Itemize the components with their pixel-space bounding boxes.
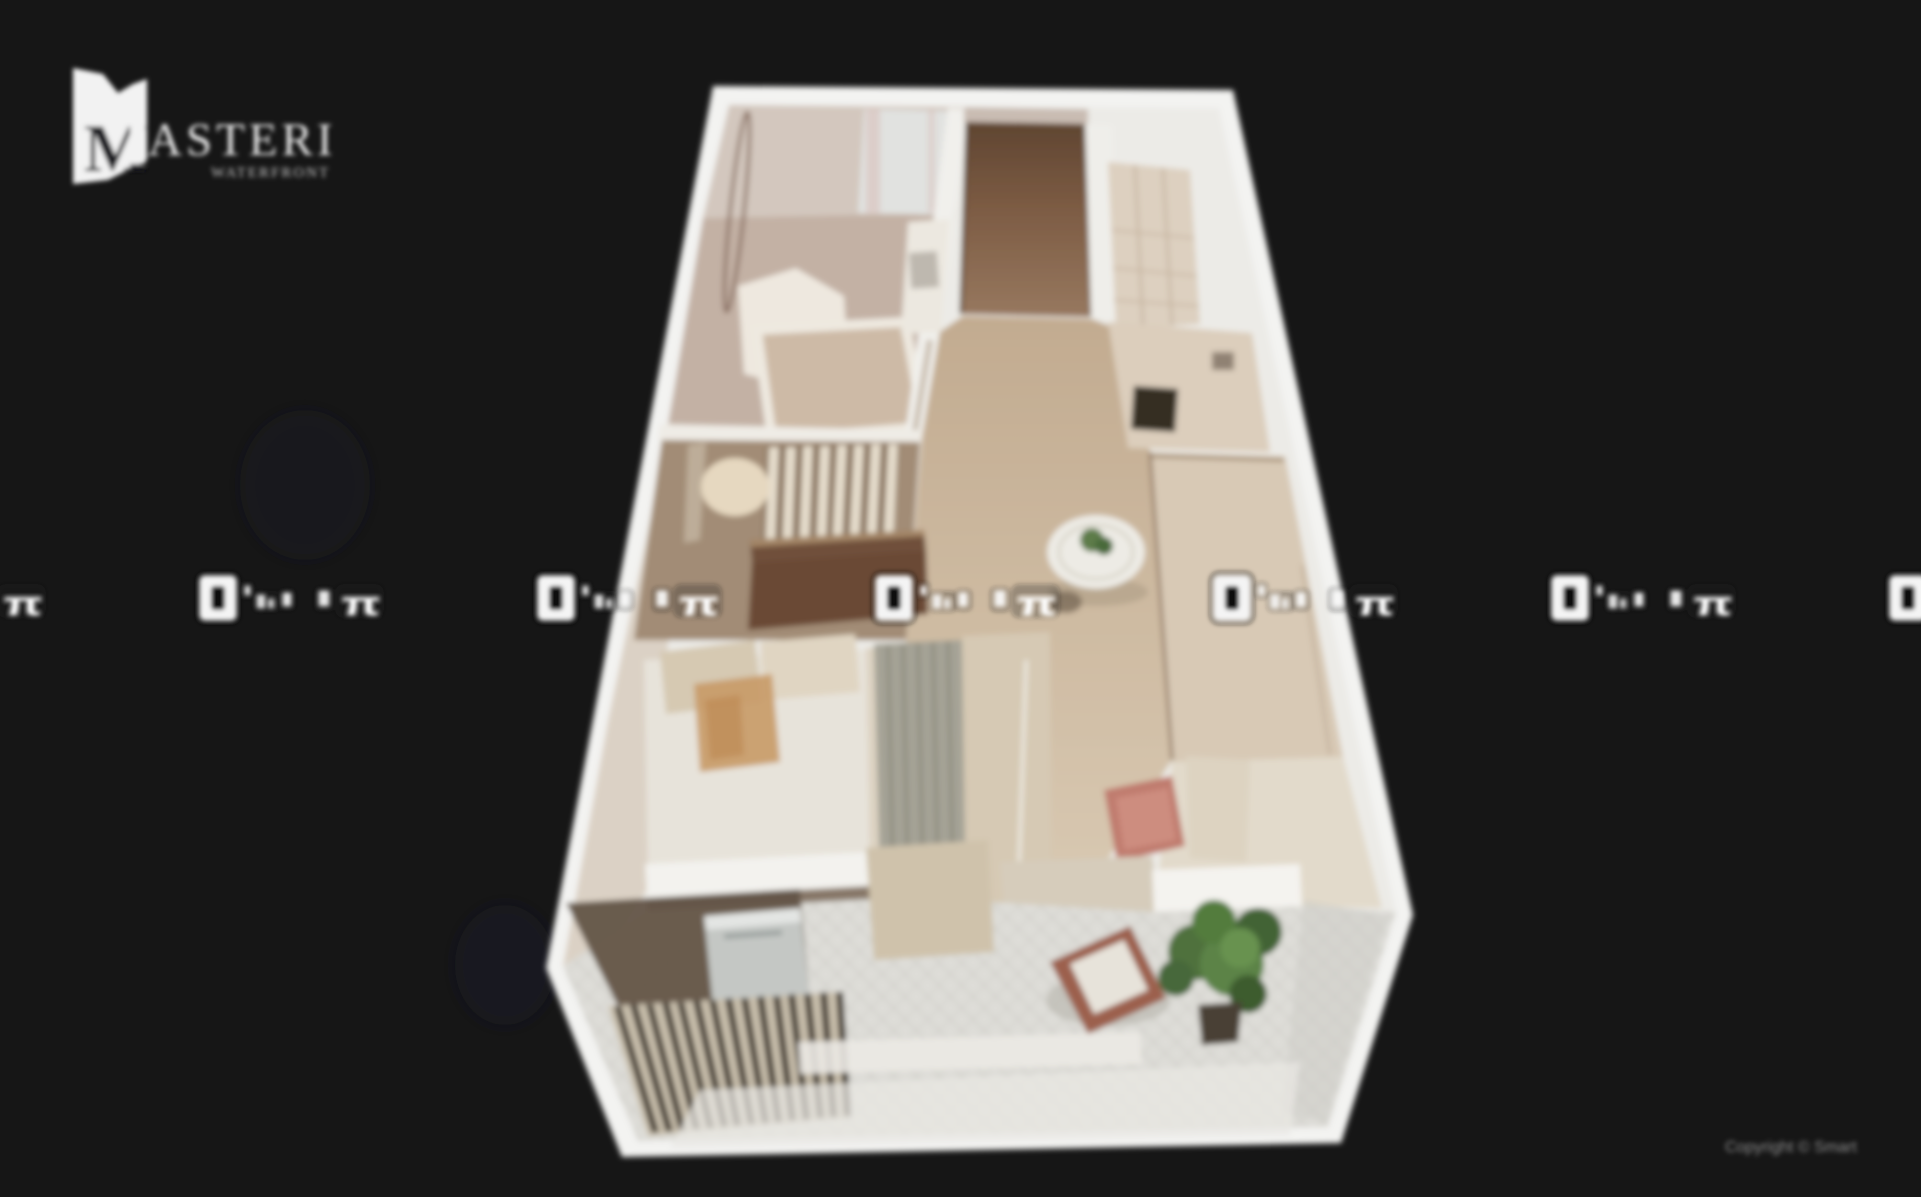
svg-text:ASTERI: ASTERI (148, 114, 337, 166)
svg-text:Copyright © Smart: Copyright © Smart (1725, 1139, 1857, 1156)
svg-text:WATERFRONT: WATERFRONT (211, 165, 330, 181)
